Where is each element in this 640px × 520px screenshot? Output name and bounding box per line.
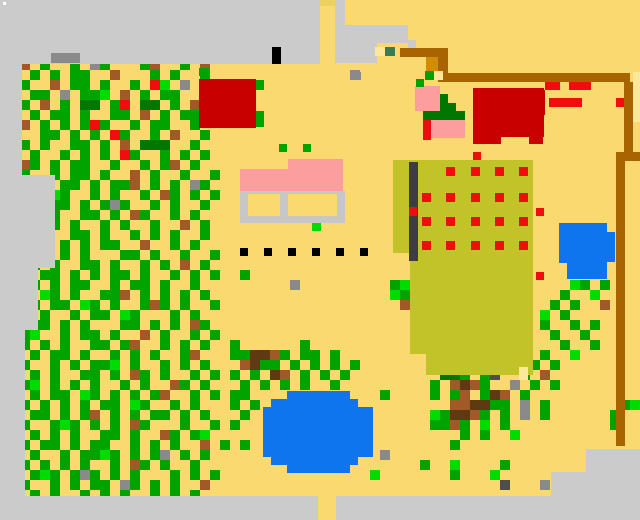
- game-map: [0, 0, 640, 520]
- map-canvas[interactable]: [0, 0, 640, 520]
